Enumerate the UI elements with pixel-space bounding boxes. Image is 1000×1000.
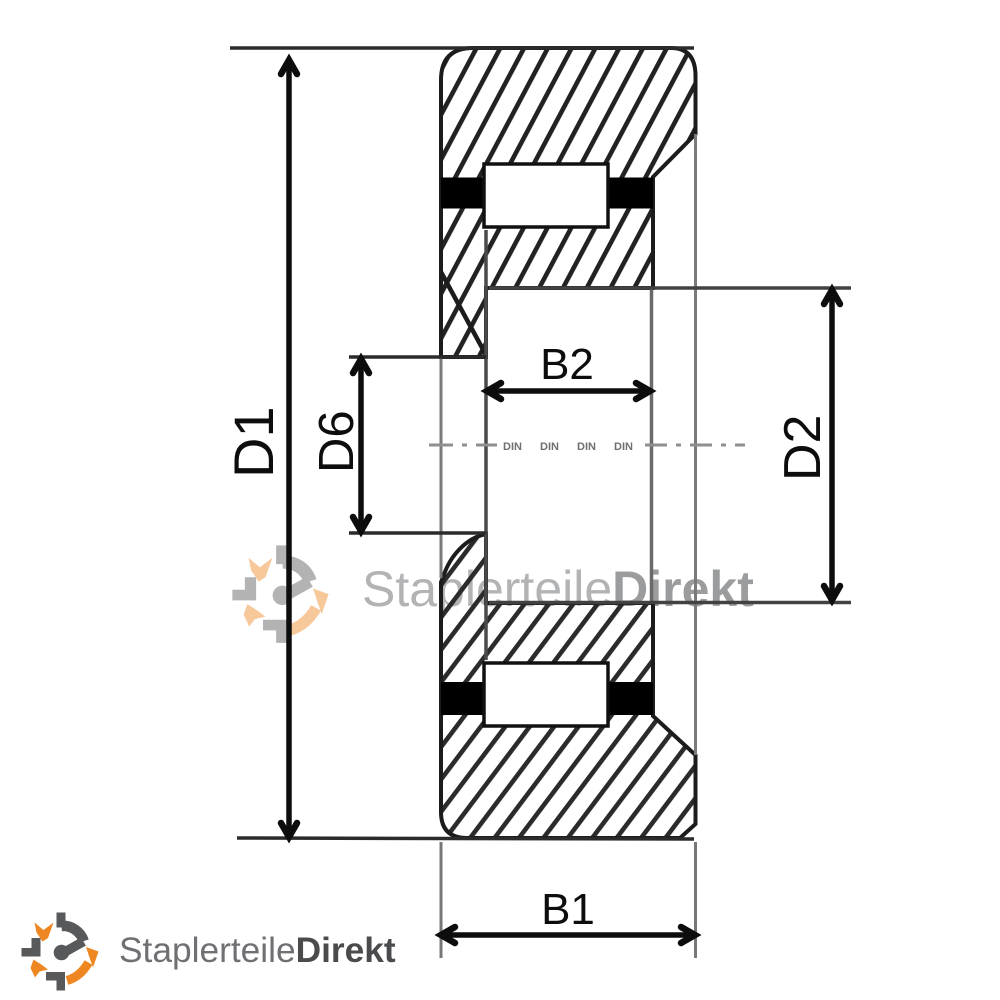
svg-text:DIN: DIN: [540, 441, 559, 453]
svg-text:D6: D6: [310, 410, 364, 473]
svg-text:DIN: DIN: [614, 441, 633, 453]
svg-text:D1: D1: [222, 406, 285, 478]
svg-text:StaplerteileDirekt: StaplerteileDirekt: [119, 931, 396, 970]
svg-text:B1: B1: [541, 885, 595, 934]
svg-text:DIN: DIN: [577, 441, 596, 453]
svg-text:B2: B2: [540, 340, 594, 389]
svg-text:DIN: DIN: [503, 441, 522, 453]
svg-text:D2: D2: [774, 415, 832, 481]
